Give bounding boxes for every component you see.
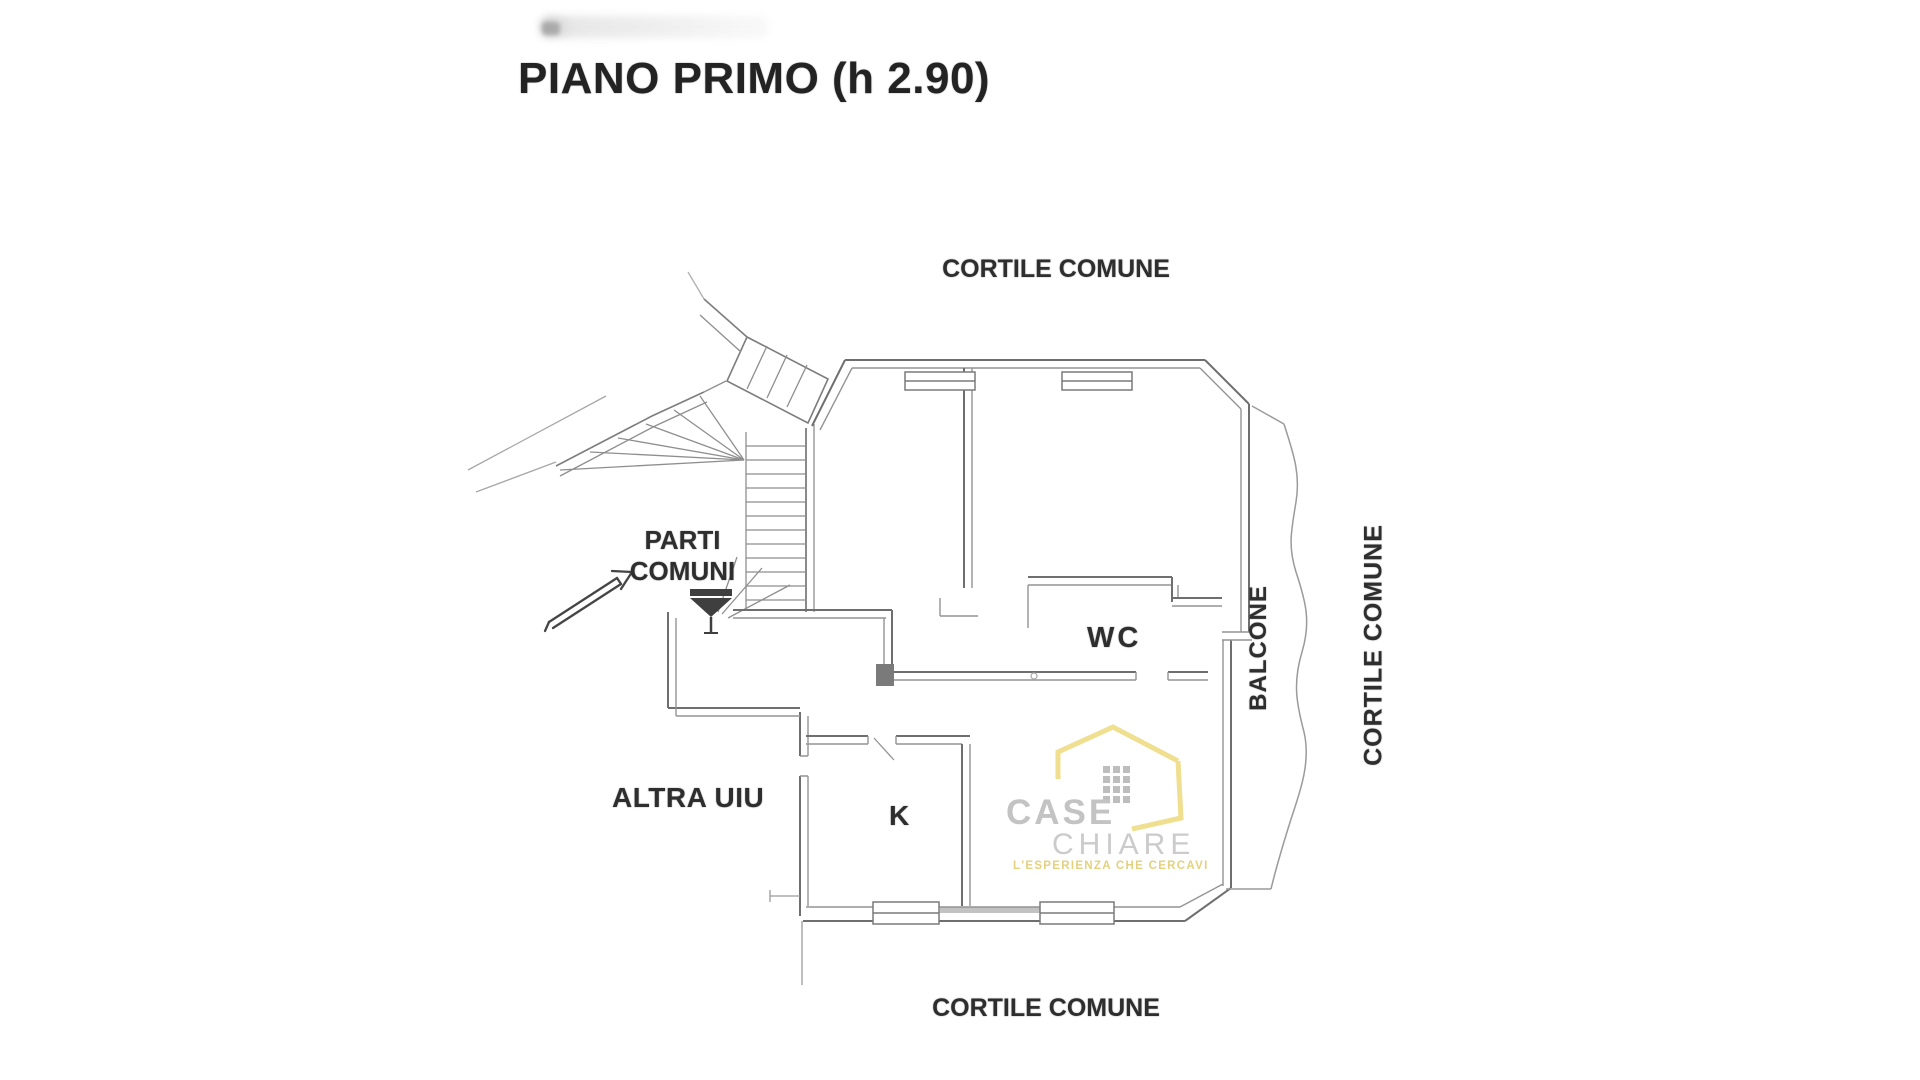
label-common-parts-line2: COMUNI	[630, 556, 735, 586]
watermark-tagline: L'ESPERIENZA CHE CERCAVI	[1013, 860, 1209, 872]
watermark-brand-bottom: CHIARE	[1052, 828, 1195, 862]
label-courtyard-top: CORTILE COMUNE	[925, 255, 1187, 284]
label-balcony: BALCONE	[1245, 585, 1273, 711]
floorplan-drawing	[0, 0, 1920, 1080]
watermark-brand-top: CASE	[1006, 793, 1115, 833]
label-courtyard-right: CORTILE COMUNE	[1360, 524, 1389, 766]
label-kitchen: K	[889, 800, 909, 832]
window-sill	[939, 907, 1040, 913]
entrance-marker-icon	[690, 589, 732, 634]
label-common-parts: PARTI COMUNI	[610, 525, 755, 587]
label-common-parts-line1: PARTI	[644, 525, 720, 555]
label-courtyard-bottom: CORTILE COMUNE	[915, 994, 1177, 1023]
floorplan-page: PIANO PRIMO (h 2.90)	[0, 0, 1920, 1080]
interior-walls	[770, 368, 1222, 985]
corridor-wall-block	[876, 664, 894, 686]
balcony-wavy-edge	[1271, 424, 1307, 889]
label-wc: WC	[1087, 622, 1141, 655]
label-other-unit: ALTRA UIU	[612, 782, 764, 814]
